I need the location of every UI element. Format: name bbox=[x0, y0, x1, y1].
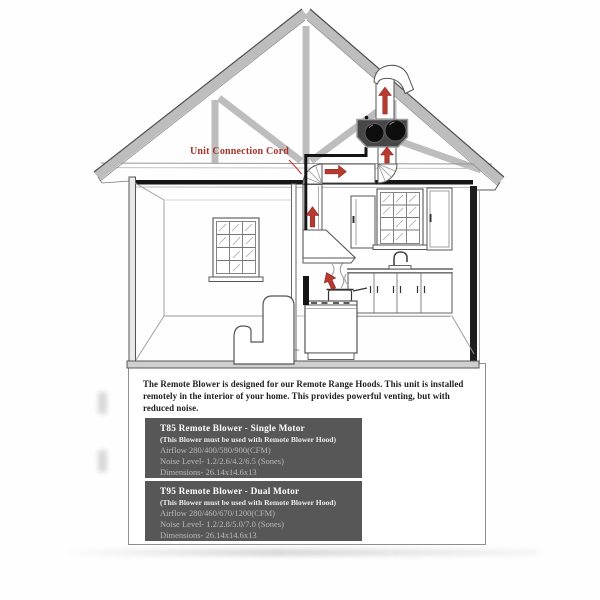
spec-box-t85: T85 Remote Blower - Single Motor (This B… bbox=[145, 418, 362, 478]
bottom-chord bbox=[101, 168, 492, 169]
roof-vent-cap bbox=[374, 65, 414, 93]
cabinet-handles bbox=[371, 286, 425, 293]
right-rafter bbox=[307, 13, 501, 181]
scan-artifact bbox=[98, 392, 107, 414]
product-noise: Noise Level- 1.2/2.8/5.0/7.0 (Sones) bbox=[160, 520, 362, 530]
right-eave bbox=[477, 182, 500, 190]
callout-leader-line bbox=[289, 160, 302, 174]
blower-fan-left bbox=[365, 124, 384, 143]
cord-wall-drop bbox=[303, 276, 309, 305]
product-dimensions: Dimensions- 26.14x14.6x13 bbox=[160, 531, 362, 541]
cabinet-handle bbox=[353, 216, 355, 223]
perspective-lines bbox=[135, 183, 164, 360]
interior-ceiling bbox=[136, 187, 470, 188]
upper-cabinet-right bbox=[427, 188, 452, 250]
airflow-arrows bbox=[306, 87, 394, 291]
remote-blower-diagram-page: The Remote Blower is designed for our Re… bbox=[0, 0, 600, 600]
attic-duct bbox=[320, 164, 375, 183]
pot-handle bbox=[353, 288, 367, 291]
steam bbox=[330, 263, 347, 288]
airflow-arrow-duct bbox=[306, 207, 319, 228]
stove bbox=[305, 301, 357, 360]
scan-artifact bbox=[60, 549, 540, 556]
product-title: T95 Remote Blower - Dual Motor bbox=[160, 487, 362, 497]
range-hood bbox=[303, 230, 355, 263]
product-dimensions: Dimensions- 26.14x14.6x13 bbox=[160, 468, 362, 478]
product-airflow: Airflow 280/400/580/900(CFM) bbox=[160, 446, 362, 456]
unit-bolt bbox=[365, 116, 369, 120]
exhaust-duct bbox=[376, 73, 394, 119]
bottom-chord bbox=[101, 163, 492, 164]
roof-edge bbox=[310, 9, 504, 177]
airflow-arrow-attic bbox=[325, 165, 347, 178]
cooking-pot bbox=[327, 288, 368, 302]
airflow-arrow-roof bbox=[379, 87, 392, 114]
cabinet-handle bbox=[430, 214, 432, 222]
product-noise: Noise Level- 1.2/2.6/4.2/6.5 (Sones) bbox=[160, 457, 362, 467]
connection-cord bbox=[306, 147, 366, 230]
cooking-area bbox=[303, 230, 367, 360]
description-text: The Remote Blower is designed for our Re… bbox=[143, 378, 473, 415]
airflow-arrow-hood bbox=[321, 270, 340, 291]
blower-unit bbox=[357, 116, 408, 147]
kitchen-duct bbox=[303, 185, 322, 231]
roof bbox=[94, 9, 504, 190]
scan-artifact bbox=[98, 450, 107, 472]
riser-duct bbox=[378, 147, 396, 164]
unit-connection-cord-label: Unit Connection Cord bbox=[190, 146, 310, 157]
truss-web bbox=[311, 100, 393, 161]
product-note: (This Blower must be used with Remote Bl… bbox=[160, 498, 362, 507]
left-wall bbox=[129, 177, 136, 367]
blower-fan-right bbox=[385, 120, 406, 141]
truss-web bbox=[399, 141, 481, 170]
house-structure bbox=[127, 177, 480, 368]
pane-glints bbox=[219, 224, 253, 271]
ceiling-line bbox=[131, 180, 473, 185]
product-note: (This Blower must be used with Remote Bl… bbox=[160, 435, 362, 444]
kitchen bbox=[296, 188, 474, 354]
duct-elbow-right bbox=[378, 164, 397, 183]
right-wall bbox=[470, 186, 477, 365]
product-title: T85 Remote Blower - Single Motor bbox=[160, 424, 362, 434]
spec-box-t95: T95 Remote Blower - Dual Motor (This Blo… bbox=[145, 481, 362, 541]
kitchen-window bbox=[373, 189, 427, 250]
duct-elbow-left bbox=[303, 164, 322, 184]
upper-cabinet-left bbox=[351, 196, 375, 248]
left-eave bbox=[98, 177, 130, 183]
sofa bbox=[234, 296, 299, 364]
interior-wall bbox=[292, 184, 297, 361]
roof-underside bbox=[307, 20, 498, 186]
sink-faucet bbox=[389, 252, 411, 269]
airflow-arrow-riser bbox=[381, 147, 394, 163]
living-room bbox=[135, 183, 299, 364]
product-airflow: Airflow 280/460/670/1200(CFM) bbox=[160, 509, 362, 519]
floor-perspective bbox=[452, 316, 474, 354]
duct-run bbox=[303, 65, 414, 230]
pane-glints bbox=[383, 195, 416, 240]
living-room-window bbox=[209, 218, 263, 282]
base-cabinets bbox=[347, 269, 453, 317]
